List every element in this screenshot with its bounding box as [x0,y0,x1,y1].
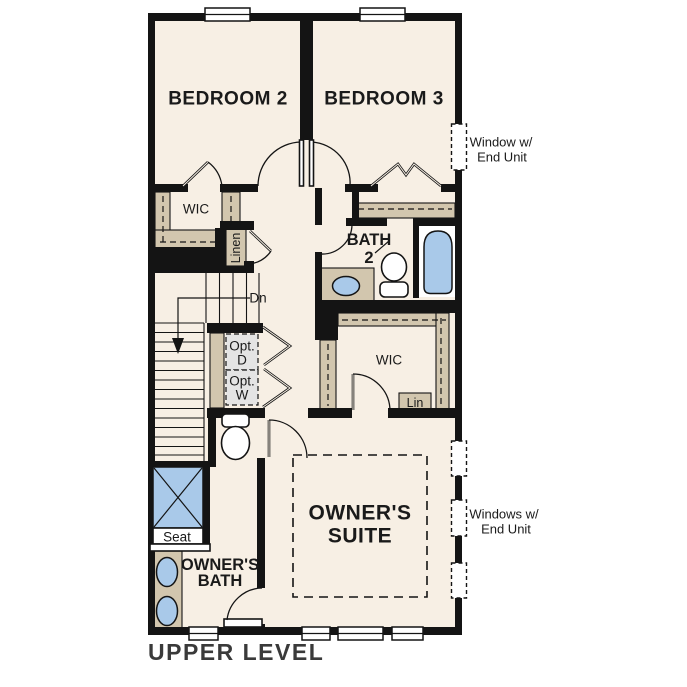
owners-suite-label-line2: SUITE [328,525,392,548]
shower-glass [150,544,210,551]
bath2-label-line2: 2 [364,249,373,267]
window-annotation-bottom-line2: End Unit [481,522,531,537]
owners-linen-label: Lin [407,396,424,410]
toilet-symbol-bath2 [380,253,408,297]
end-unit-window-1 [452,441,467,476]
page-title: UPPER LEVEL [148,639,324,665]
bathtub-symbol [419,226,455,297]
top-window-1 [205,8,250,21]
bedroom2-label: BEDROOM 2 [168,89,288,110]
stairs-down-label: Dn [249,291,266,306]
end-unit-window-2 [452,500,467,536]
shower-seat-label: Seat [163,530,191,545]
bottom-window-4 [392,627,423,640]
floor-plan-page: BEDROOM 2 BEDROOM 3 WIC Linen Dn BATH 2 … [0,0,687,687]
sink-symbol-bath2 [333,277,360,296]
owners-wic-label: WIC [376,353,402,368]
bedroom-divider-wall [300,13,313,140]
top-window-2 [360,8,405,21]
opt-washer-label-line1: Opt. [229,374,255,389]
bottom-window-3 [338,627,383,640]
bath2-label-line1: BATH [347,231,392,249]
opt-dryer-label-line1: Opt. [229,339,255,354]
end-unit-window-3 [452,563,467,598]
bedroom2-closet-label: WIC [183,202,209,217]
floor-plan: BEDROOM 2 BEDROOM 3 WIC Linen Dn BATH 2 … [0,0,687,687]
toilet-symbol-owners [222,414,250,460]
owners-suite-label-line1: OWNER'S [309,502,412,525]
window-annotation-top-line1: Window w/ [470,135,533,150]
linen-closet-label: Linen [229,233,243,264]
owners-bath-label-line2: BATH [198,572,243,590]
end-unit-window-top [452,124,467,170]
window-annotation-top-line2: End Unit [477,150,527,165]
window-annotation-bottom-line1: Windows w/ [469,507,539,522]
opt-washer-label-line2: W [236,388,249,403]
bedroom3-label: BEDROOM 3 [324,89,444,110]
opt-dryer-label-line2: D [237,353,247,368]
